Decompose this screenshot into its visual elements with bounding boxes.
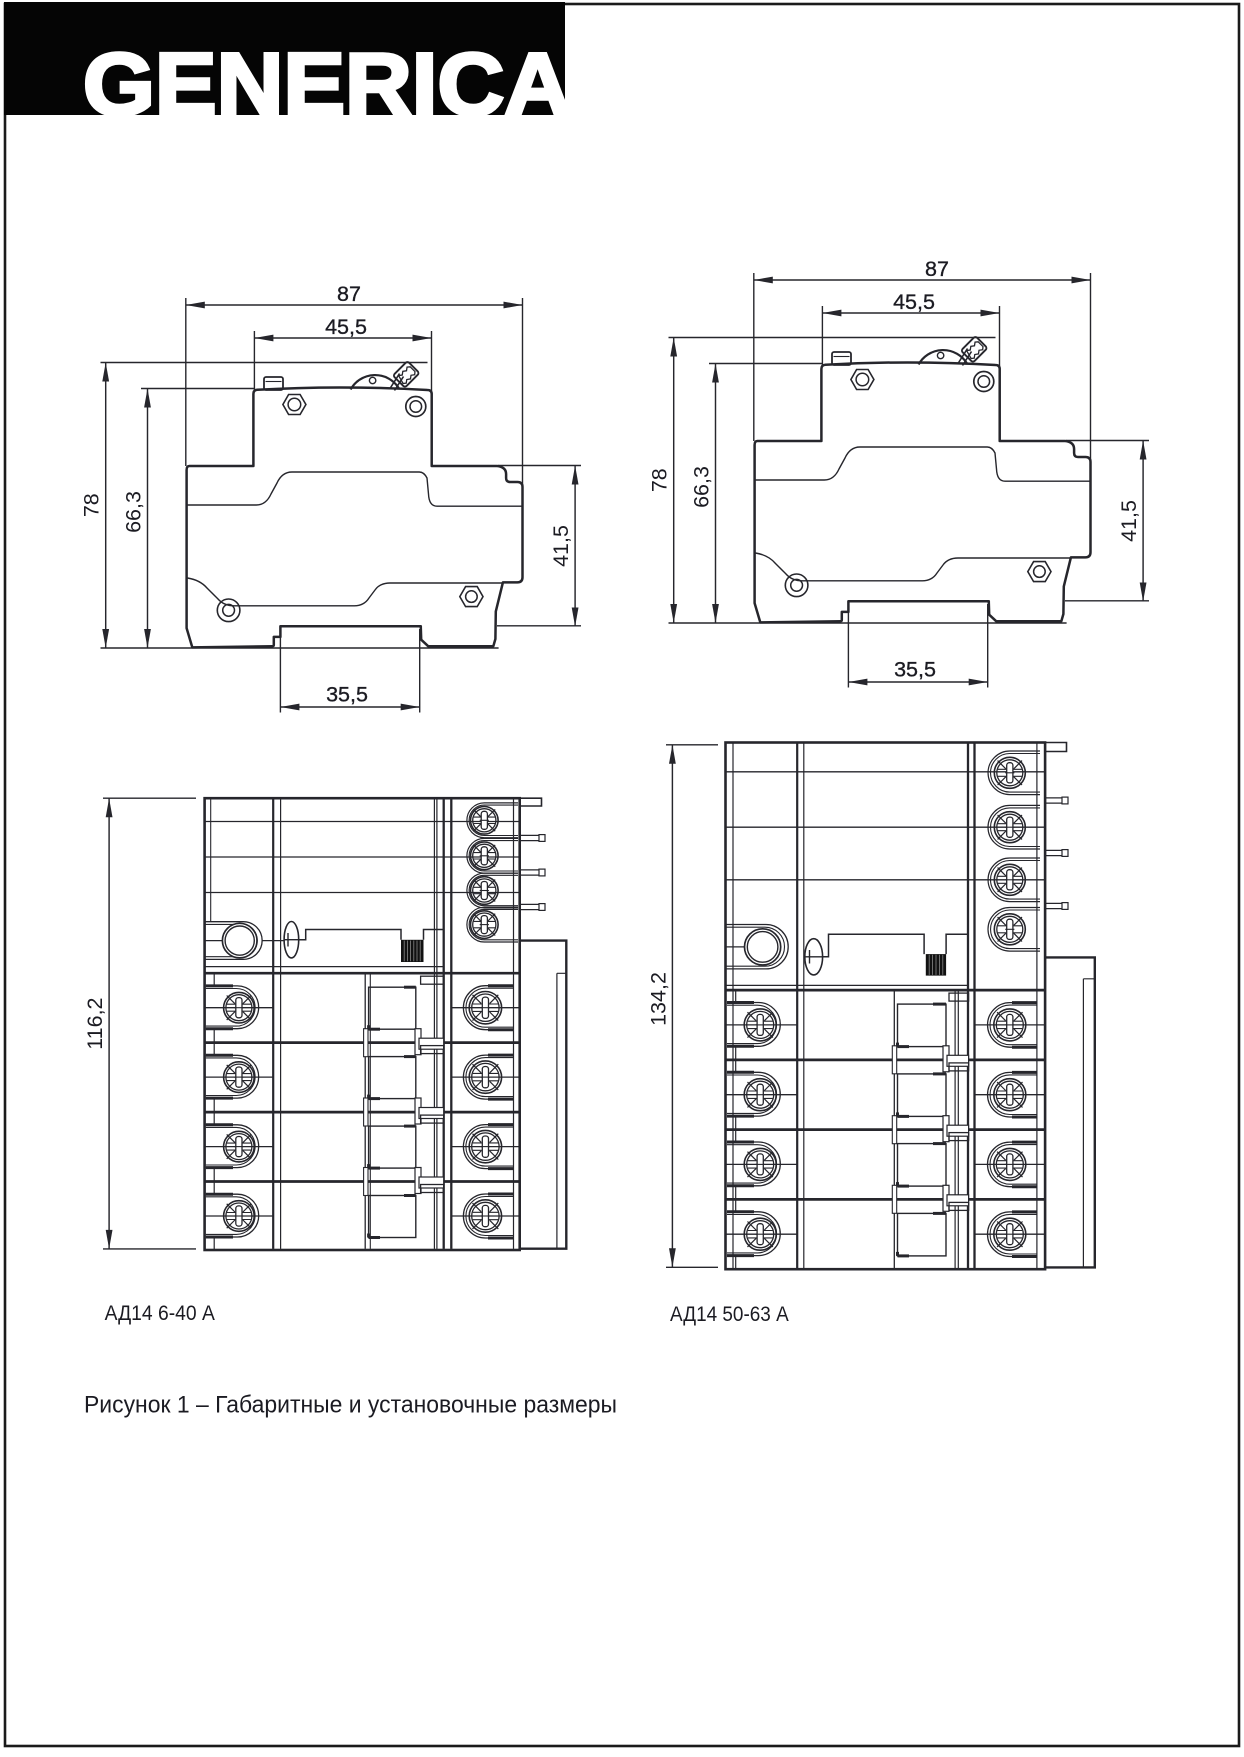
svg-text:35,5: 35,5: [894, 658, 936, 682]
svg-text:41,5: 41,5: [549, 525, 573, 567]
svg-text:66,3: 66,3: [690, 466, 714, 508]
svg-text:Рисунок 1 – Габаритные и устан: Рисунок 1 – Габаритные и установочные ра…: [84, 1392, 617, 1419]
svg-text:41,5: 41,5: [1117, 500, 1141, 542]
svg-text:87: 87: [337, 282, 361, 306]
svg-text:134,2: 134,2: [646, 972, 670, 1026]
svg-text:45,5: 45,5: [325, 315, 367, 339]
svg-text:78: 78: [648, 468, 672, 492]
svg-text:АД14 50-63 А: АД14 50-63 А: [670, 1302, 789, 1326]
svg-text:35,5: 35,5: [326, 683, 368, 707]
svg-text:45,5: 45,5: [893, 290, 935, 314]
svg-text:87: 87: [925, 257, 949, 281]
svg-text:78: 78: [80, 493, 104, 517]
svg-text:66,3: 66,3: [122, 491, 146, 533]
svg-text:АД14 6-40 А: АД14 6-40 А: [105, 1301, 216, 1325]
svg-text:116,2: 116,2: [83, 997, 107, 1049]
